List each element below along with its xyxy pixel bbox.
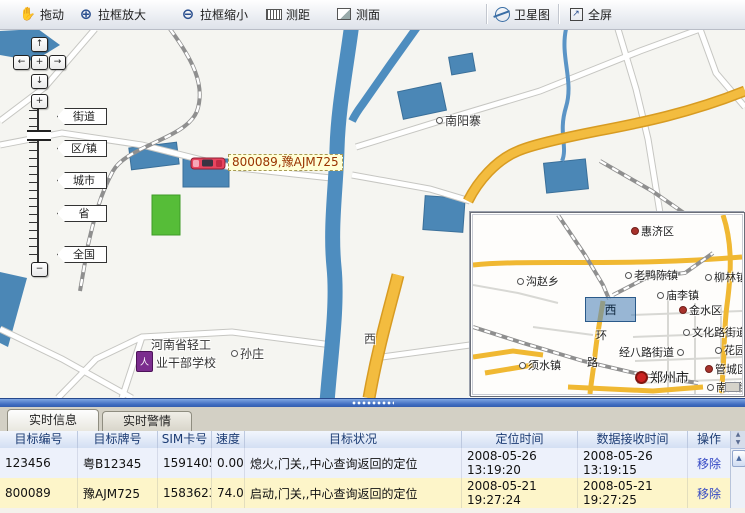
- zoom-out-button[interactable]: −: [31, 262, 48, 277]
- place-marker-icon: [231, 350, 238, 357]
- town-circle-icon: [517, 278, 524, 285]
- cell-recv-time: 2008-05-21 19:27:25: [578, 478, 688, 508]
- minimap-label: 须水镇: [519, 357, 561, 373]
- minimap-viewport-rect[interactable]: 西: [585, 297, 636, 322]
- table-row[interactable]: 123456 粤B12345 15914051378 0.00 熄火,门关,,中…: [0, 448, 730, 478]
- zoom-in-button[interactable]: +: [31, 94, 48, 109]
- toolbar-separator: [558, 4, 560, 24]
- minimap-label: 庙李镇: [657, 287, 699, 303]
- cell-fix-time: 2008-05-21 19:27:24: [462, 478, 578, 508]
- minimap[interactable]: 惠济区 沟赵乡 老鸭陈镇 柳林镇 庙李镇 金水区 文化路街道 经八路街道 花园路…: [470, 212, 745, 397]
- pan-right-button[interactable]: →: [49, 55, 66, 70]
- tool-fullscreen[interactable]: ↗ 全屏: [564, 0, 616, 28]
- tool-zoom-out-label: 拉框缩小: [200, 6, 248, 23]
- col-speed[interactable]: 速度: [212, 431, 245, 448]
- minimap-label: 沟赵乡: [517, 273, 559, 289]
- tab-realtime-alarm[interactable]: 实时警情: [102, 411, 192, 431]
- measure-distance-icon: [266, 6, 282, 22]
- toolbar-separator: [486, 4, 488, 24]
- zoom-level-nation[interactable]: 全国: [57, 246, 107, 263]
- fullscreen-icon: ↗: [568, 6, 584, 22]
- bottom-tab-bar: 实时信息 实时警情: [0, 407, 745, 432]
- plus-icon: +: [36, 96, 44, 106]
- minimap-label: 文化路街道: [683, 324, 743, 340]
- cell-speed: 74.00: [212, 478, 245, 508]
- tool-measure-distance[interactable]: 测距: [262, 0, 314, 28]
- town-circle-icon: [705, 274, 712, 281]
- map-label-nanyangzhai: 南阳寨: [436, 112, 481, 129]
- tool-measure-distance-label: 测距: [286, 6, 310, 23]
- map-label-road-west: 西: [364, 330, 376, 347]
- minimap-label: 经八路街道: [619, 344, 684, 360]
- zoom-out-box-icon: ⊖: [180, 6, 196, 22]
- tool-satellite-map[interactable]: 卫星图: [490, 0, 554, 28]
- pan-center-button[interactable]: +: [31, 55, 48, 70]
- cell-status: 熄火,门关,,中心查询返回的定位: [245, 448, 462, 478]
- map-label-sunzhuang: 孙庄: [231, 345, 264, 362]
- pan-left-button[interactable]: ←: [13, 55, 30, 70]
- measure-area-icon: [336, 6, 352, 22]
- tool-zoom-out-box[interactable]: ⊖ 拉框缩小: [176, 0, 252, 28]
- minus-icon: −: [36, 264, 44, 274]
- tool-fullscreen-label: 全屏: [588, 6, 612, 23]
- cell-recv-time: 2008-05-26 13:19:15: [578, 448, 688, 478]
- district-dot-icon: [679, 306, 687, 314]
- cell-status: 启动,门关,,中心查询返回的定位: [245, 478, 462, 508]
- satellite-map-icon: [494, 6, 510, 22]
- zoom-slider-handle[interactable]: [27, 130, 51, 141]
- minimap-label: 管城区: [705, 361, 743, 377]
- splitter-grip-icon: [352, 401, 394, 406]
- table-scrollbar[interactable]: ▲▼ ▲: [730, 431, 745, 513]
- town-circle-icon: [683, 329, 690, 336]
- tab-realtime-info[interactable]: 实时信息: [7, 409, 99, 431]
- minimap-label-city: 郑州市: [635, 367, 689, 386]
- town-circle-icon: [677, 349, 684, 356]
- minimap-label: 金水区: [679, 302, 722, 318]
- minimap-label-road: 路: [587, 354, 598, 370]
- town-circle-icon: [707, 384, 714, 391]
- zoom-level-province[interactable]: 省: [57, 205, 107, 222]
- cell-plate: 豫AJM725: [78, 478, 158, 508]
- arrow-right-icon: →: [54, 57, 62, 67]
- col-status[interactable]: 目标状况: [245, 431, 462, 448]
- col-recv-time[interactable]: 数据接收时间: [578, 431, 688, 448]
- remove-link[interactable]: 移除: [688, 478, 730, 508]
- town-circle-icon: [625, 272, 632, 279]
- pan-center-icon: +: [36, 57, 44, 67]
- tool-measure-area-label: 测面: [356, 6, 380, 23]
- town-circle-icon: [657, 292, 664, 299]
- zoom-level-street[interactable]: 街道: [57, 108, 107, 125]
- tool-drag-label: 拖动: [40, 6, 64, 23]
- map-label-school-line2: 业干部学校: [156, 354, 216, 371]
- vehicle-info-label[interactable]: 800089,豫AJM725: [228, 154, 343, 171]
- minimap-label: 柳林镇: [705, 269, 743, 285]
- cell-target-id: 800089: [0, 478, 78, 508]
- pan-down-button[interactable]: ↓: [31, 74, 48, 89]
- bottom-filler: [0, 508, 745, 513]
- town-circle-icon: [715, 347, 722, 354]
- table-row-selected[interactable]: 800089 豫AJM725 15836233884 74.00 启动,门关,,…: [0, 478, 730, 508]
- district-dot-icon: [631, 227, 639, 235]
- minimap-label-road: 环: [596, 327, 607, 343]
- tool-zoom-in-box[interactable]: ⊕ 拉框放大: [74, 0, 150, 28]
- hand-icon: ✋: [20, 6, 36, 22]
- school-icon: 人: [136, 351, 153, 372]
- place-marker-icon: [436, 117, 443, 124]
- minimap-label: 惠济区: [631, 223, 674, 239]
- cell-plate: 粤B12345: [78, 448, 158, 478]
- city-dot-icon: [635, 371, 648, 384]
- zoom-in-box-icon: ⊕: [78, 6, 94, 22]
- col-target-id[interactable]: 目标编号: [0, 431, 78, 448]
- zoom-level-city[interactable]: 城市: [57, 172, 107, 189]
- cell-speed: 0.00: [212, 448, 245, 478]
- cell-sim: 15914051378: [158, 448, 212, 478]
- cell-target-id: 123456: [0, 448, 78, 478]
- town-circle-icon: [519, 362, 526, 369]
- minimap-resize-handle[interactable]: [725, 382, 740, 392]
- scrollbar-spinner[interactable]: ▲▼: [731, 431, 745, 449]
- tool-zoom-in-label: 拉框放大: [98, 6, 146, 23]
- pan-up-button[interactable]: ↑: [31, 37, 48, 52]
- tool-drag[interactable]: ✋ 拖动: [16, 0, 68, 28]
- cell-sim: 15836233884: [158, 478, 212, 508]
- tool-measure-area[interactable]: 测面: [332, 0, 384, 28]
- tool-satellite-label: 卫星图: [514, 6, 550, 23]
- minimap-label: 花园路: [715, 342, 743, 358]
- col-fix-time[interactable]: 定位时间: [462, 431, 578, 448]
- scrollbar-up-button[interactable]: ▲: [732, 450, 745, 467]
- zoom-level-district[interactable]: 区/镇: [57, 140, 107, 157]
- table-header-row: 目标编号 目标牌号 SIM卡号 速度 目标状况 定位时间 数据接收时间 操作: [0, 431, 730, 449]
- realtime-info-table: 目标编号 目标牌号 SIM卡号 速度 目标状况 定位时间 数据接收时间 操作 1…: [0, 431, 745, 513]
- minimap-content[interactable]: 惠济区 沟赵乡 老鸭陈镇 柳林镇 庙李镇 金水区 文化路街道 经八路街道 花园路…: [472, 214, 743, 395]
- minimap-label: 老鸭陈镇: [625, 267, 678, 283]
- toolbar: ✋ 拖动 ⊕ 拉框放大 ⊖ 拉框缩小 测距 测面 卫星图 ↗ 全屏: [0, 0, 745, 30]
- col-sim[interactable]: SIM卡号: [158, 431, 212, 448]
- map-label-school-line1: 河南省轻工: [151, 336, 211, 353]
- col-action[interactable]: 操作: [688, 431, 730, 448]
- district-dot-icon: [705, 365, 713, 373]
- col-plate[interactable]: 目标牌号: [78, 431, 158, 448]
- arrow-up-icon: ↑: [36, 39, 44, 49]
- cell-fix-time: 2008-05-26 13:19:20: [462, 448, 578, 478]
- arrow-down-icon: ↓: [36, 76, 44, 86]
- arrow-left-icon: ←: [18, 57, 26, 67]
- remove-link[interactable]: 移除: [688, 448, 730, 478]
